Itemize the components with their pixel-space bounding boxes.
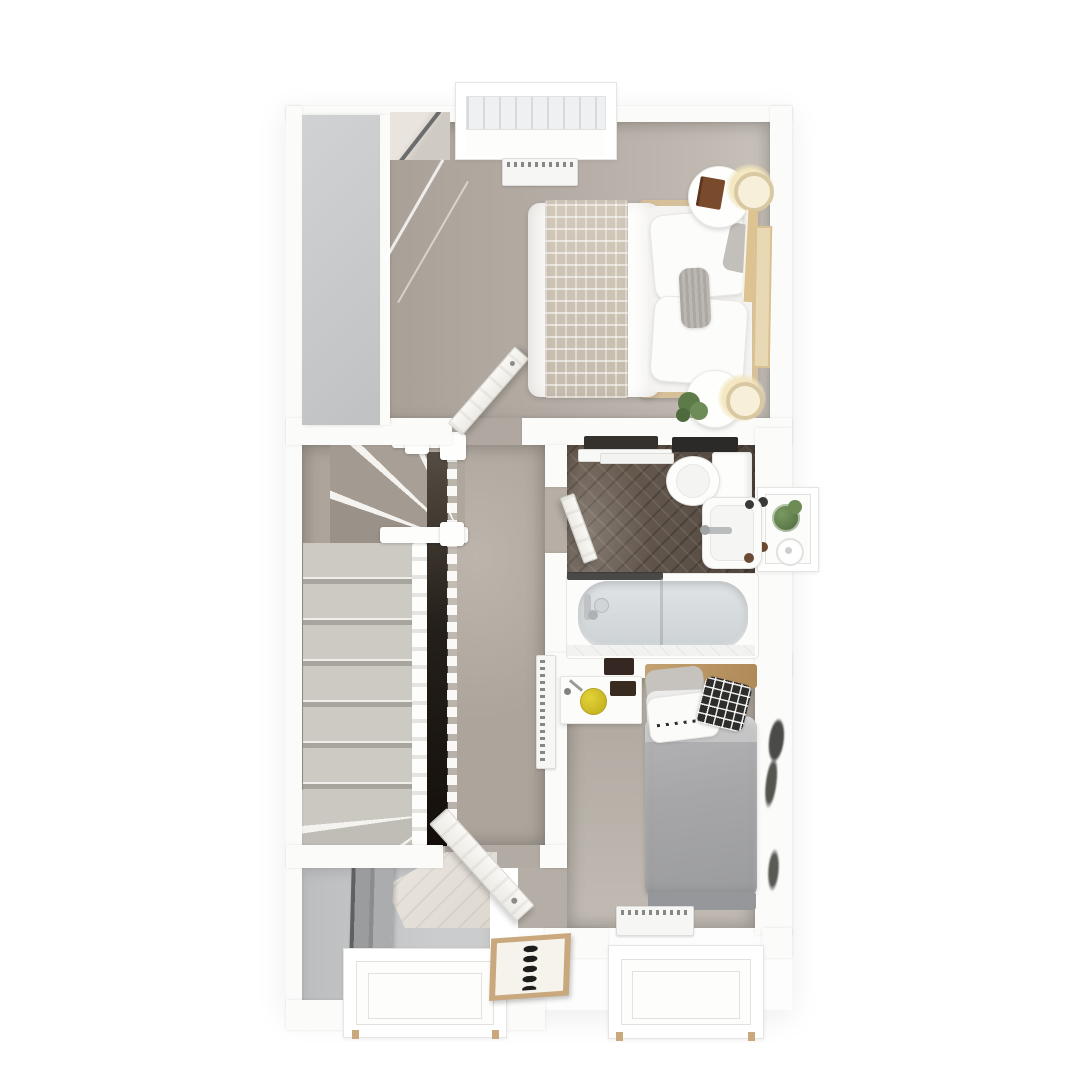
radiator-landing [536,655,556,769]
door-handle [509,360,516,367]
throw-blanket [545,200,628,398]
radiator-grille [540,660,545,764]
table-lamp [734,172,774,212]
picture-frame [753,226,772,368]
bathroom-window-shelf [757,487,819,572]
screen-glass-edge [660,578,663,646]
radiator-bedroom-front [502,158,578,186]
soap-bar [744,553,754,563]
wall-left [286,106,302,868]
window-foot [492,1030,499,1039]
window-front-bay [455,82,617,160]
wall-lower-bottom-b [505,1000,545,1030]
banister-left-rail [412,543,427,846]
single-bed-duvet [645,716,757,898]
pinboard [604,658,634,675]
basin-tap-head [700,525,710,535]
wall-landing-corner [540,845,567,868]
stair-void [427,452,448,846]
window-foot [616,1032,623,1041]
desk-stool [580,688,607,715]
floor-plan-render [0,0,1080,1080]
towel-rail [600,453,674,464]
book [696,176,726,210]
sill-step [368,973,482,1019]
tile-strip [567,645,755,656]
toilet-roll-core [785,547,792,554]
window-rear-right-bay [608,945,764,1039]
shower-screen [567,572,663,580]
window-rear-left-bay [343,948,507,1038]
banister-spindles [447,452,457,846]
shower-head [594,598,609,613]
art-ink-ovals [517,943,543,991]
wall-center-top [545,445,567,487]
plant [690,402,708,420]
plant-leaf [788,500,802,514]
wall-landing-bottom [286,845,443,868]
towel [584,436,658,450]
wall-left-lower [286,868,302,1008]
toilet-seat [676,464,710,498]
wardrobe-frame [380,115,390,425]
laptop [610,681,636,696]
bath-mat [672,437,738,452]
window-sill-inner [466,129,604,156]
wardrobe-mirror-door [390,112,450,160]
sliding-wardrobe [302,115,380,425]
roman-blind [466,96,606,130]
newel-post [440,522,464,546]
plant [676,408,690,422]
radiator-grille [621,910,689,915]
wall-right-top [770,106,792,428]
door-handle [510,896,518,904]
radiator-bedroom-rear [616,906,694,936]
radiator-grille [507,162,573,167]
wall-lower-bottom-a [286,1000,343,1030]
wall-right-mid-a [755,428,792,487]
sill-step [632,971,740,1019]
mirror-streak [395,112,441,160]
table-lamp [726,382,764,420]
window-foot [748,1032,755,1041]
wall-bottom-b [762,928,792,958]
window-foot [352,1030,359,1039]
framed-art [489,933,571,1001]
soap-dispenser [745,500,754,509]
desk-lamp-head [564,688,571,695]
bathtub-basin [578,581,748,649]
knit-cushion [678,267,711,328]
